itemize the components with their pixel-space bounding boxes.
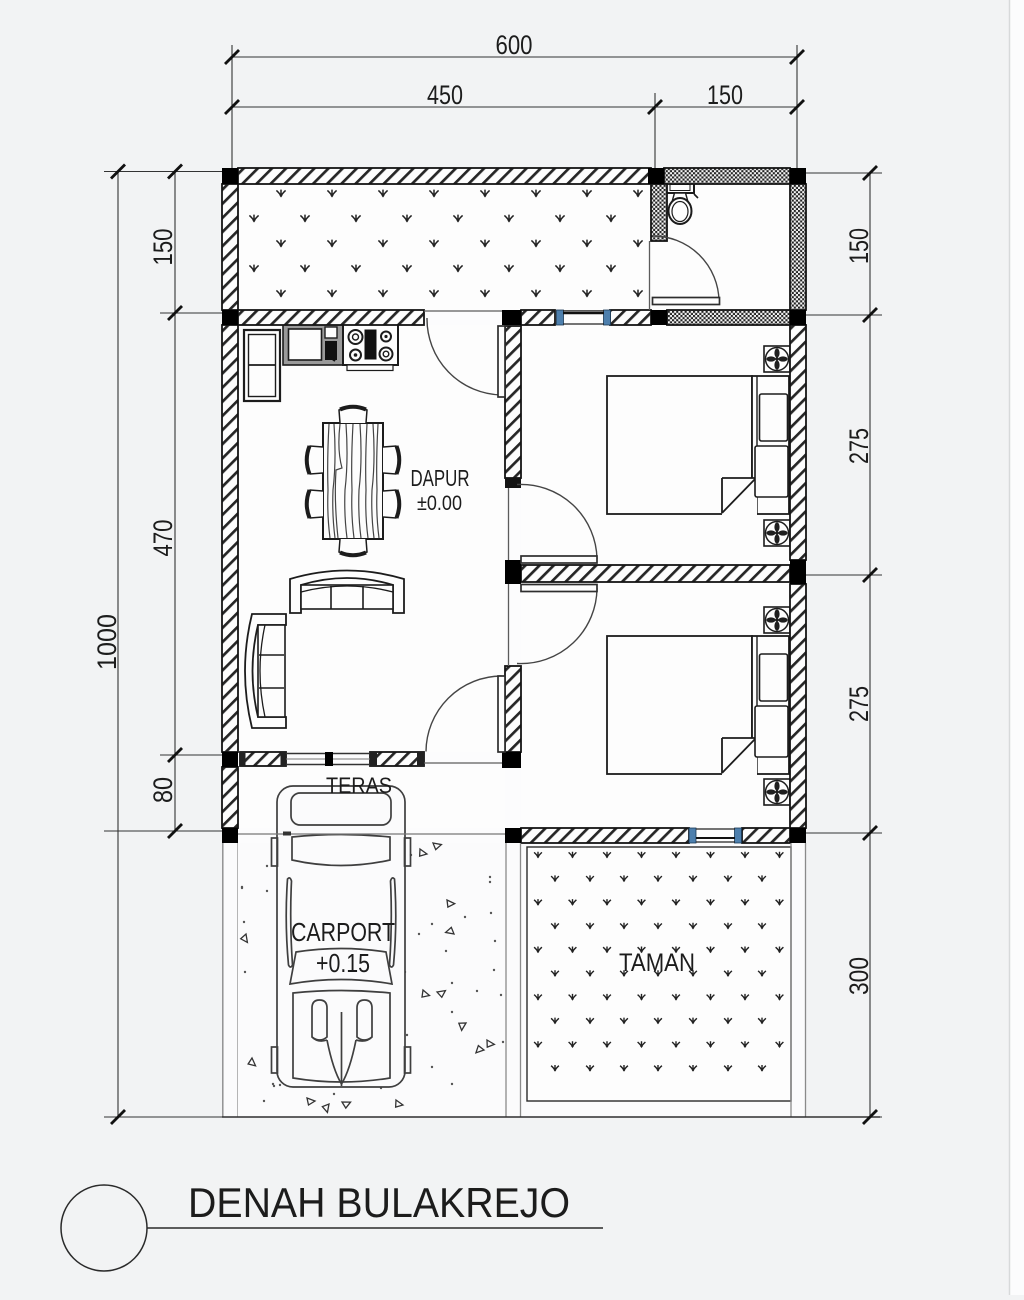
svg-text:450: 450 — [427, 80, 463, 110]
svg-text:470: 470 — [148, 520, 178, 557]
svg-text:150: 150 — [844, 228, 874, 264]
svg-text:150: 150 — [148, 229, 178, 266]
svg-text:DAPUR: DAPUR — [411, 465, 470, 491]
svg-text:TERAS: TERAS — [326, 773, 392, 798]
svg-text:DENAH BULAKREJO: DENAH BULAKREJO — [188, 1179, 570, 1226]
svg-text:+0.15: +0.15 — [316, 948, 370, 978]
svg-text:80: 80 — [148, 777, 178, 803]
svg-text:1000: 1000 — [92, 614, 122, 670]
svg-text:275: 275 — [844, 428, 874, 464]
svg-text:275: 275 — [844, 686, 874, 722]
svg-text:150: 150 — [707, 80, 743, 110]
svg-text:600: 600 — [496, 30, 533, 60]
svg-text:TAMAN: TAMAN — [619, 949, 695, 977]
svg-text:CARPORT: CARPORT — [291, 917, 395, 947]
svg-text:±0.00: ±0.00 — [417, 492, 462, 515]
svg-text:300: 300 — [844, 957, 874, 995]
